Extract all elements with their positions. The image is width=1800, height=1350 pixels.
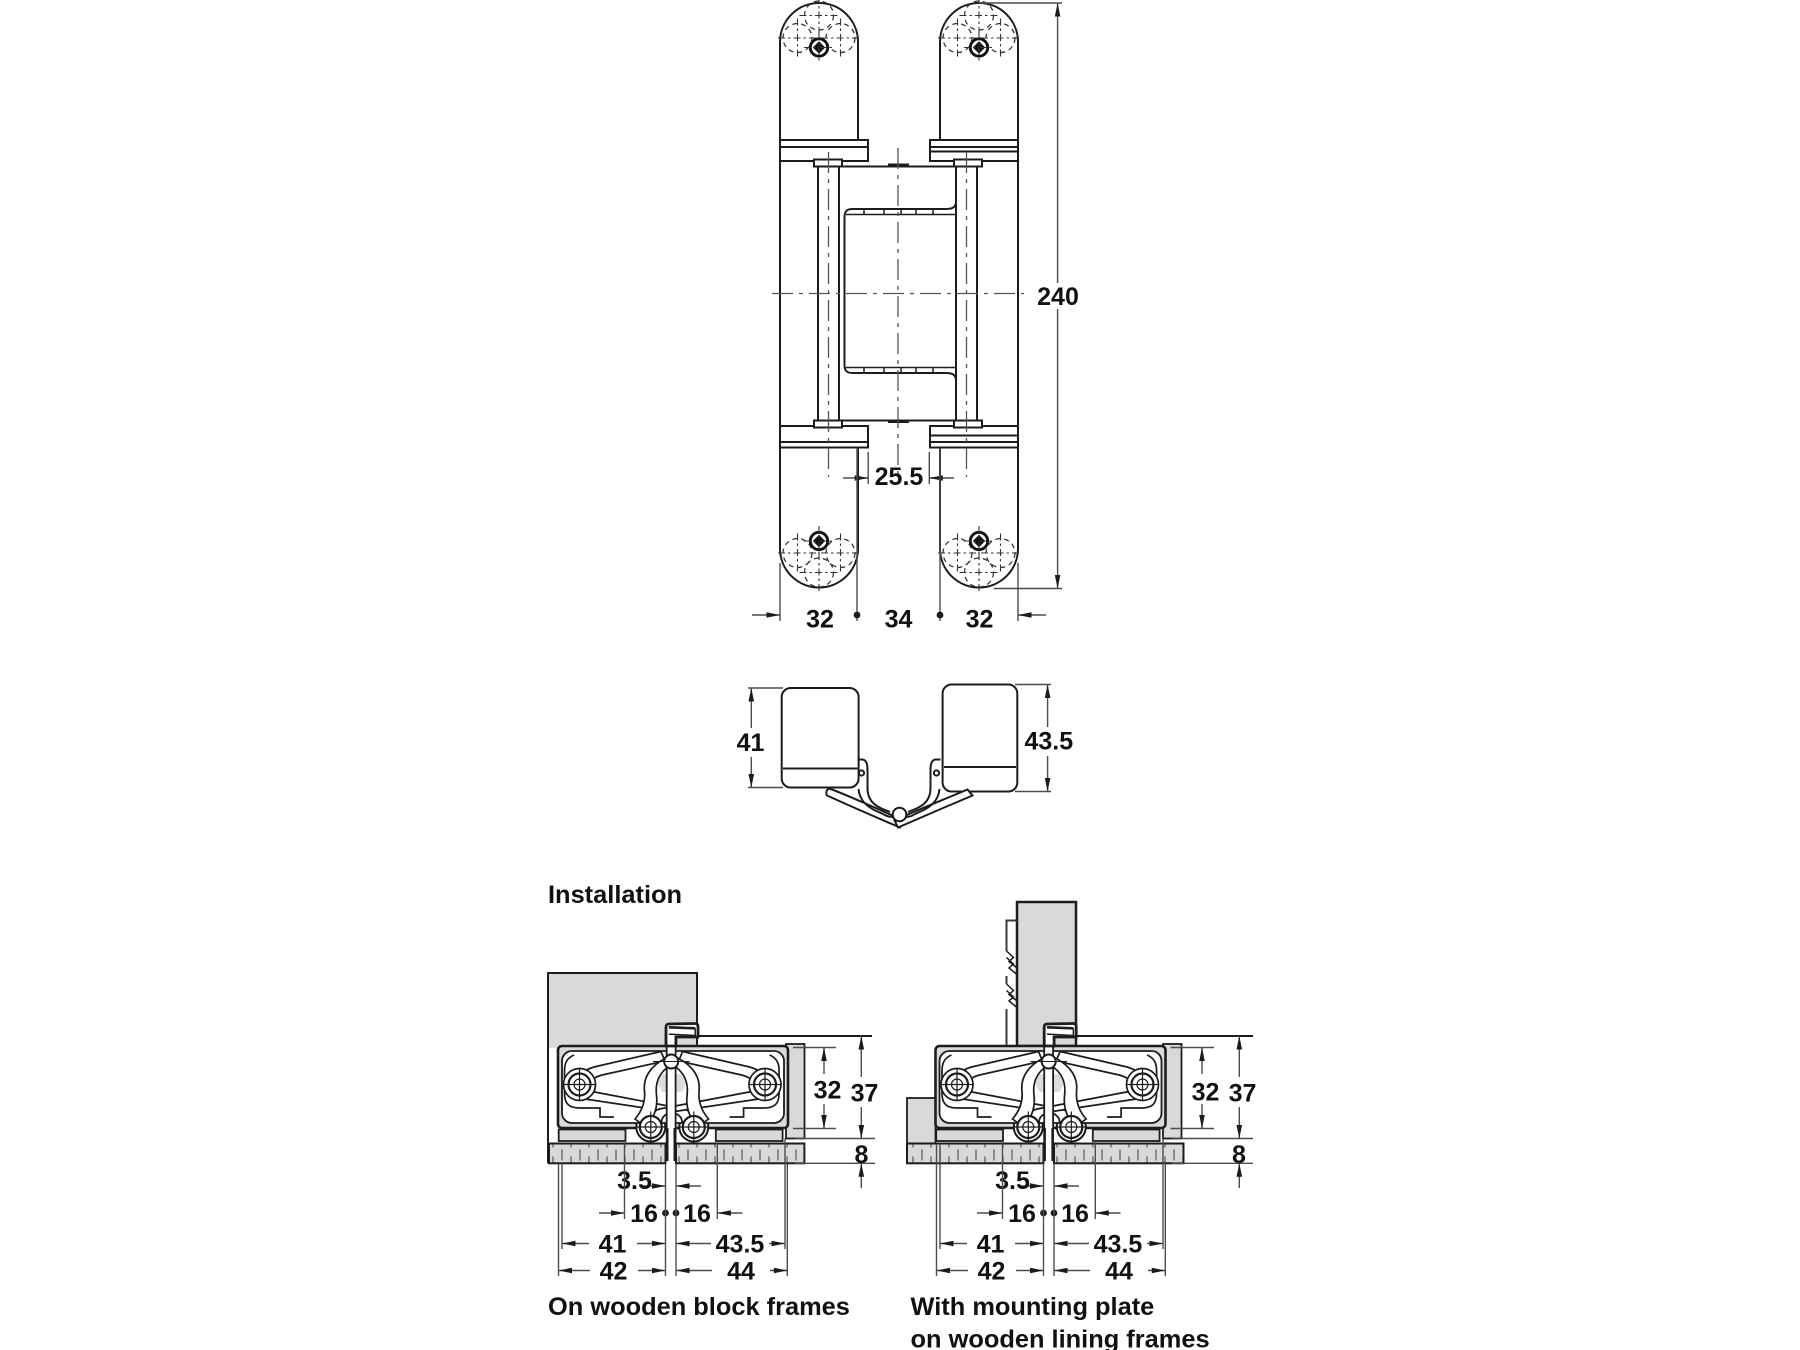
- svg-text:43.5: 43.5: [716, 1231, 765, 1259]
- svg-text:16: 16: [1008, 1200, 1036, 1228]
- svg-text:240: 240: [1037, 283, 1079, 311]
- svg-text:16: 16: [683, 1200, 711, 1228]
- svg-text:25.5: 25.5: [875, 463, 924, 491]
- svg-text:37: 37: [1229, 1080, 1257, 1108]
- svg-text:41: 41: [599, 1231, 627, 1259]
- svg-text:37: 37: [851, 1080, 879, 1108]
- svg-text:With mounting plate: With mounting plate: [911, 1293, 1155, 1321]
- svg-text:34: 34: [885, 606, 913, 634]
- svg-text:on wooden lining frames: on wooden lining frames: [911, 1326, 1210, 1350]
- svg-text:8: 8: [855, 1141, 869, 1169]
- svg-text:41: 41: [737, 729, 765, 757]
- svg-text:42: 42: [978, 1258, 1006, 1286]
- svg-text:32: 32: [814, 1077, 842, 1105]
- svg-text:16: 16: [630, 1200, 658, 1228]
- svg-text:3.5: 3.5: [995, 1167, 1030, 1195]
- svg-text:Installation: Installation: [548, 881, 682, 909]
- svg-text:On wooden block frames: On wooden block frames: [548, 1293, 850, 1321]
- svg-text:43.5: 43.5: [1024, 728, 1073, 756]
- svg-text:42: 42: [600, 1258, 628, 1286]
- svg-text:32: 32: [1192, 1079, 1220, 1107]
- svg-text:8: 8: [1232, 1141, 1246, 1169]
- svg-text:41: 41: [977, 1231, 1005, 1259]
- svg-text:32: 32: [806, 606, 834, 634]
- svg-text:44: 44: [1105, 1258, 1133, 1286]
- svg-text:32: 32: [966, 606, 994, 634]
- svg-text:16: 16: [1061, 1200, 1089, 1228]
- svg-text:43.5: 43.5: [1094, 1231, 1143, 1259]
- svg-text:44: 44: [727, 1258, 755, 1286]
- svg-text:3.5: 3.5: [617, 1167, 652, 1195]
